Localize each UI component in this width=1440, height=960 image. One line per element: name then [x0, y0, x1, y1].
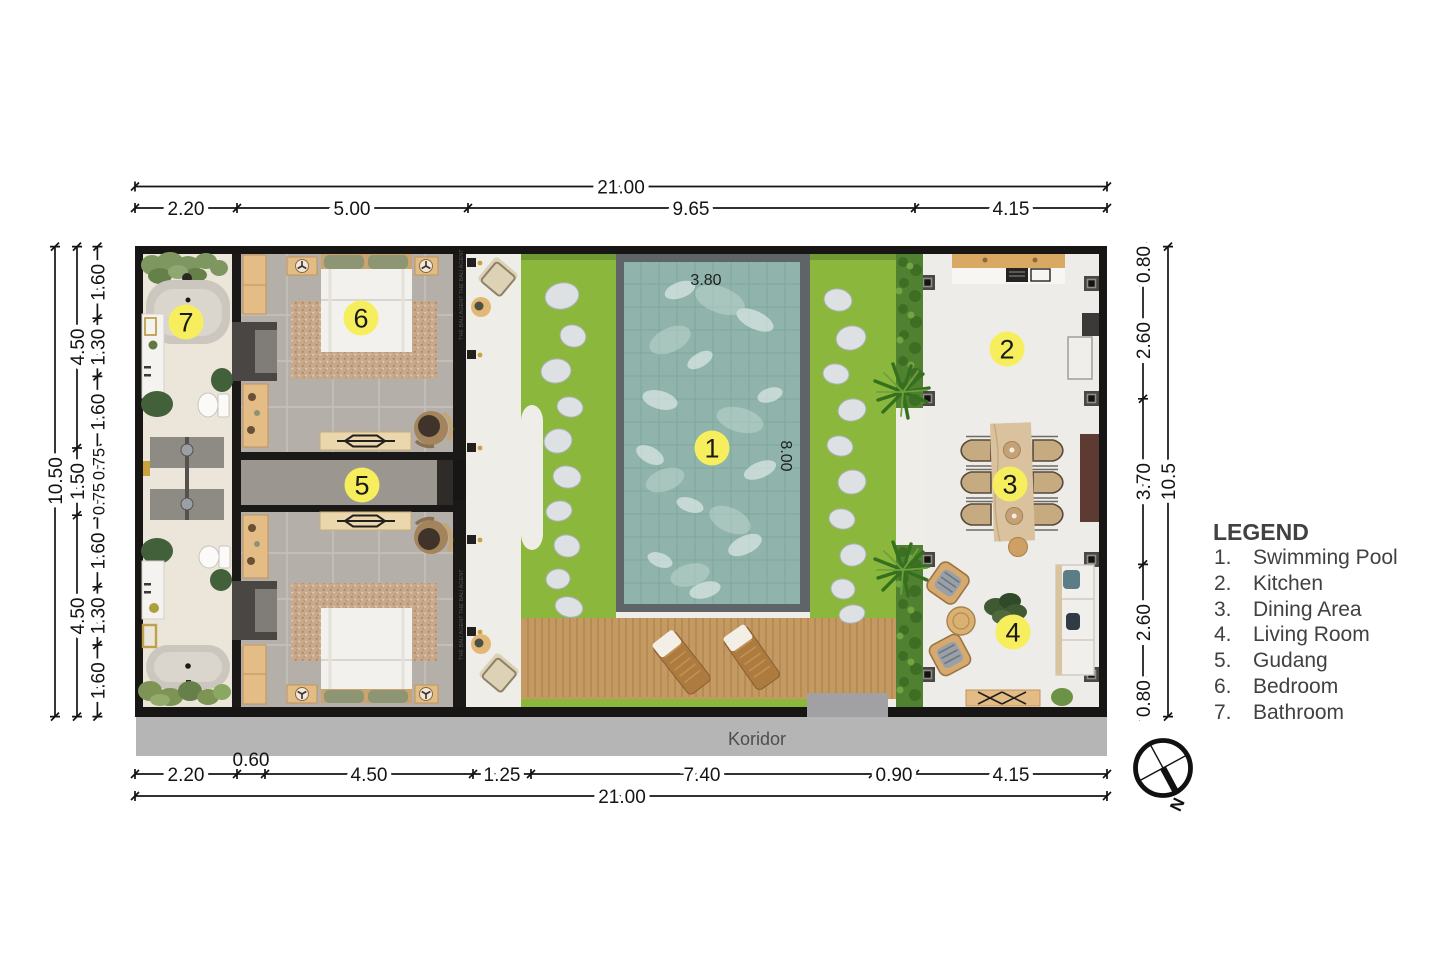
svg-text:10.50: 10.50 [46, 457, 67, 505]
svg-text:Gudang: Gudang [1253, 649, 1328, 672]
svg-text:4.50: 4.50 [68, 329, 89, 366]
svg-text:9.65: 9.65 [673, 199, 710, 220]
svg-text:7.: 7. [1214, 701, 1232, 724]
svg-text:Bedroom: Bedroom [1253, 675, 1338, 698]
svg-text:0.60: 0.60 [233, 750, 270, 771]
svg-text:1.60: 1.60 [88, 662, 109, 699]
svg-text:2.60: 2.60 [1134, 604, 1155, 641]
svg-text:Dining Area: Dining Area [1253, 598, 1362, 621]
svg-text:4: 4 [1005, 618, 1020, 648]
svg-text:8.00: 8.00 [777, 440, 794, 471]
svg-text:0.75: 0.75 [90, 483, 108, 515]
svg-text:2.: 2. [1214, 572, 1232, 595]
svg-text:6.: 6. [1214, 675, 1232, 698]
svg-text:10.5: 10.5 [1159, 463, 1180, 500]
svg-text:THE BALI AGENT THE BALI AGENT: THE BALI AGENT THE BALI AGENT [459, 569, 465, 660]
svg-text:4.15: 4.15 [993, 199, 1030, 220]
svg-text:3.: 3. [1214, 598, 1232, 621]
svg-text:0.90: 0.90 [876, 765, 913, 786]
svg-text:THE BALI AGENT THE BALI AGENT: THE BALI AGENT THE BALI AGENT [459, 249, 465, 340]
svg-text:1.30: 1.30 [88, 329, 109, 366]
svg-text:1.60: 1.60 [88, 533, 109, 570]
svg-text:3.80: 3.80 [690, 272, 721, 289]
svg-text:Swimming Pool: Swimming Pool [1253, 546, 1398, 569]
svg-text:7.40: 7.40 [684, 765, 721, 786]
svg-text:N: N [1166, 795, 1188, 814]
svg-text:1.50: 1.50 [68, 463, 89, 500]
svg-text:4.50: 4.50 [351, 765, 388, 786]
svg-text:Kitchen: Kitchen [1253, 572, 1323, 595]
svg-text:2.20: 2.20 [168, 765, 205, 786]
svg-text:0.80: 0.80 [1134, 246, 1155, 283]
svg-text:21.00: 21.00 [597, 178, 645, 199]
svg-text:4.: 4. [1214, 623, 1232, 646]
svg-text:2.20: 2.20 [168, 199, 205, 220]
svg-text:1.30: 1.30 [88, 597, 109, 634]
svg-text:1: 1 [704, 434, 719, 464]
svg-text:2: 2 [999, 335, 1014, 365]
svg-text:5.00: 5.00 [334, 199, 371, 220]
svg-text:2.60: 2.60 [1134, 322, 1155, 359]
svg-text:5: 5 [354, 471, 369, 501]
svg-text:7: 7 [178, 308, 193, 338]
svg-text:4.15: 4.15 [993, 765, 1030, 786]
svg-text:Living Room: Living Room [1253, 623, 1370, 646]
svg-text:Bathroom: Bathroom [1253, 701, 1344, 724]
svg-text:3.70: 3.70 [1134, 463, 1155, 500]
svg-text:0.75: 0.75 [90, 448, 108, 480]
svg-text:1.60: 1.60 [88, 394, 109, 431]
svg-text:LEGEND: LEGEND [1213, 519, 1309, 545]
svg-text:Koridor: Koridor [728, 729, 786, 749]
svg-text:1.60: 1.60 [88, 264, 109, 301]
svg-text:5.: 5. [1214, 649, 1232, 672]
svg-text:3: 3 [1002, 470, 1017, 500]
svg-text:1.25: 1.25 [484, 765, 521, 786]
svg-text:1.: 1. [1214, 546, 1232, 569]
svg-text:0.80: 0.80 [1134, 680, 1155, 717]
svg-text:21.00: 21.00 [598, 787, 646, 808]
svg-text:6: 6 [353, 304, 368, 334]
svg-text:4.50: 4.50 [68, 598, 89, 635]
